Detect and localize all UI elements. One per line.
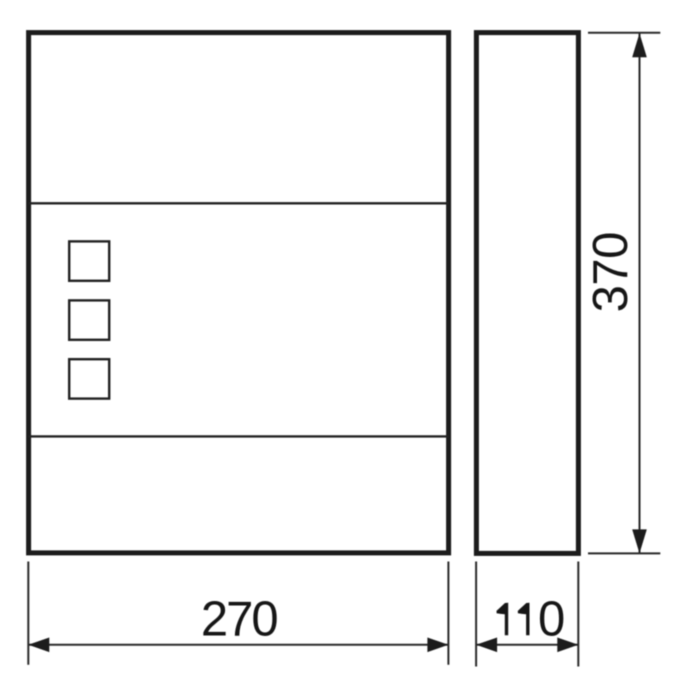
svg-text:0: 0: [538, 592, 565, 646]
svg-text:370: 370: [584, 232, 638, 312]
svg-text:270: 270: [201, 592, 278, 646]
